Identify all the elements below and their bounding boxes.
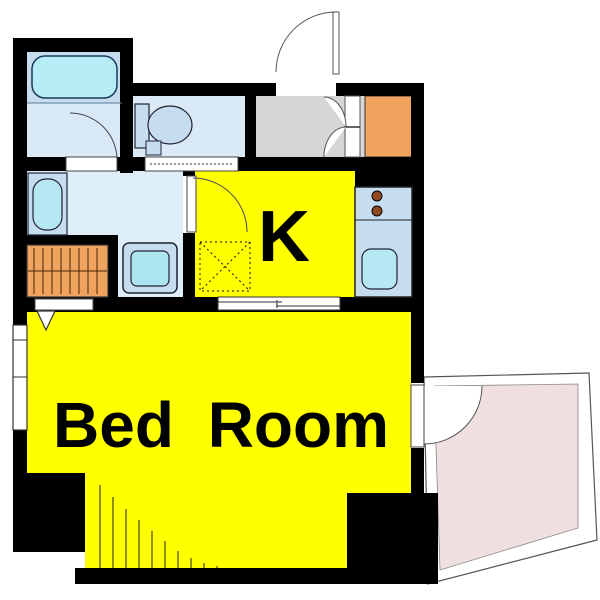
wall-top xyxy=(120,83,424,96)
wall-corner-bottom-left xyxy=(13,473,85,552)
bath-door-leaf xyxy=(66,157,117,171)
kitchen-counter xyxy=(355,187,412,297)
entry-door-arc-icon xyxy=(276,12,336,72)
bathtub-icon xyxy=(32,56,117,98)
washing-machine-icon xyxy=(123,243,177,293)
entry-opening xyxy=(276,83,336,96)
wall-corner-bottom-right xyxy=(347,493,438,584)
entry-door-leaf xyxy=(333,12,339,74)
floor-plan-svg: K Bed Room xyxy=(0,0,600,600)
kitchen-sink-icon xyxy=(362,249,397,289)
bedroom-sliding-door xyxy=(218,297,340,310)
wall-toilet-right xyxy=(245,96,256,158)
wall-left-lower xyxy=(13,430,27,475)
kitchen-door-leaf xyxy=(187,176,196,232)
wall-closet-top xyxy=(27,235,118,245)
bedroom-label: Bed Room xyxy=(53,389,389,461)
kitchen-label: K xyxy=(258,197,310,277)
wall-bathroom-top xyxy=(13,38,133,52)
closet-icon xyxy=(27,245,108,297)
stove-burner-icon xyxy=(372,206,382,216)
toilet-flush-box xyxy=(146,141,161,155)
bedroom-closet-door xyxy=(35,299,93,310)
shoe-cabinet xyxy=(365,96,412,157)
wall-bathroom-right xyxy=(120,38,133,173)
toilet-bowl xyxy=(148,106,192,144)
stove-burner-icon xyxy=(372,191,382,201)
wall-counter-top-block xyxy=(355,157,412,187)
vanity-basin xyxy=(33,179,62,230)
vanity-sink-icon xyxy=(28,173,67,235)
wall-right-upper xyxy=(411,83,424,383)
wall-bottom xyxy=(75,568,360,584)
balcony xyxy=(424,373,597,584)
washer-drum xyxy=(131,251,169,286)
floor-plan: K Bed Room xyxy=(0,0,600,600)
balcony-door-leaf xyxy=(411,385,424,447)
wall-left-upper xyxy=(13,38,27,325)
bathroom-floor xyxy=(27,103,122,157)
